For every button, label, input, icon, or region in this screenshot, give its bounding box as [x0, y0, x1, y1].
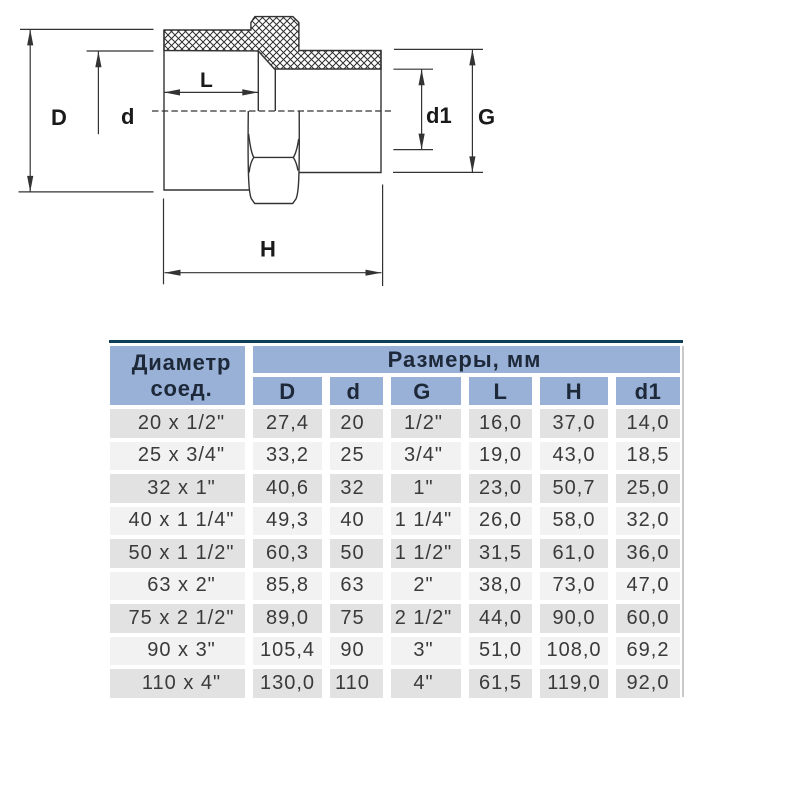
svg-text:d1: d1: [426, 103, 452, 128]
svg-text:D: D: [51, 105, 67, 130]
svg-text:L: L: [200, 69, 213, 92]
svg-text:G: G: [478, 105, 495, 130]
svg-text:d: d: [121, 104, 134, 129]
svg-text:H: H: [260, 237, 276, 262]
